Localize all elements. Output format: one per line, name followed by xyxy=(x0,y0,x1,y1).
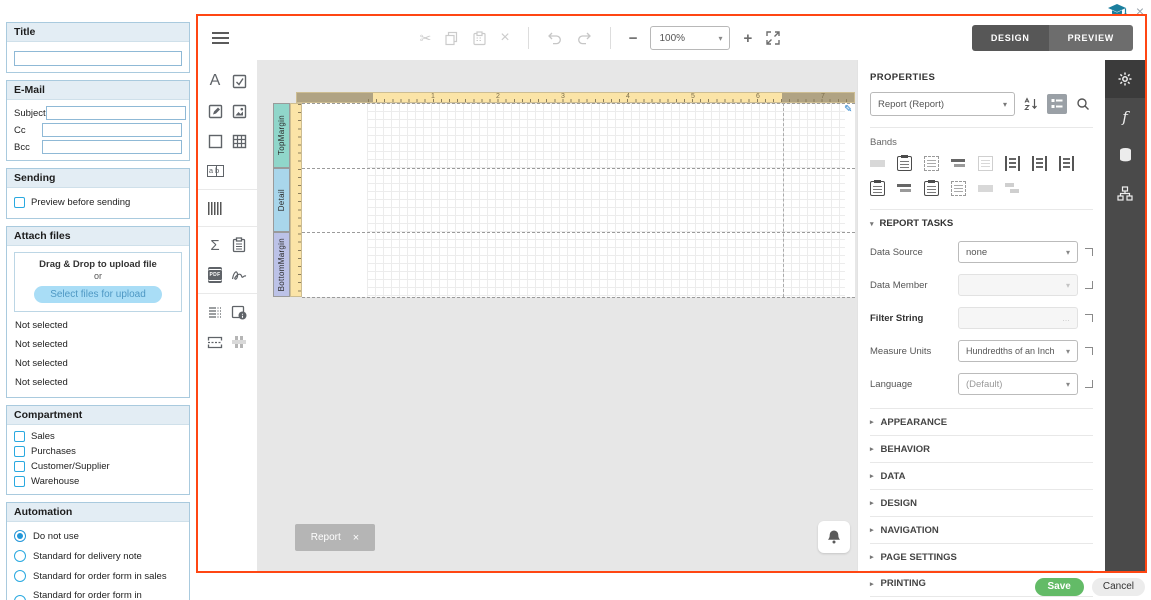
band-type-icon xyxy=(1005,181,1020,196)
function-icon: f xyxy=(1122,108,1128,126)
section-label: DESIGN xyxy=(881,498,917,509)
compartment-customer-supplier-label: Customer/Supplier xyxy=(31,461,110,472)
band-type-icon[interactable] xyxy=(1032,156,1047,171)
measure-units-label: Measure Units xyxy=(870,346,958,357)
label-tool[interactable]: A xyxy=(203,72,227,90)
band-type-icon xyxy=(870,156,885,171)
table-tool[interactable] xyxy=(227,134,251,149)
copy-icon[interactable] xyxy=(444,31,459,46)
picture-box-tool[interactable] xyxy=(227,104,251,119)
preview-before-sending-label: Preview before sending xyxy=(31,197,130,208)
compartment-customer-supplier-checkbox[interactable] xyxy=(14,461,25,472)
control-toolbox: A xyxy=(198,60,257,571)
data-source-dropdown[interactable]: none ▾ xyxy=(958,241,1078,263)
ruler-number: 7 xyxy=(821,93,825,100)
chevron-collapsed-icon: ▸ xyxy=(870,445,874,453)
page-break-tool[interactable] xyxy=(203,336,227,349)
attachment-slot: Not selected xyxy=(15,358,182,369)
properties-title: PROPERTIES xyxy=(870,72,1093,83)
menu-hamburger-icon[interactable] xyxy=(212,29,229,47)
band-type-toolbar xyxy=(870,156,1093,171)
filter-string-label: Filter String xyxy=(870,313,958,324)
property-marker[interactable] xyxy=(1085,281,1093,289)
delete-icon[interactable]: × xyxy=(500,31,509,45)
automation-label: Standard for order form in purchases xyxy=(33,590,182,600)
zoom-out-button[interactable]: − xyxy=(629,30,638,47)
designer-sidebar: f xyxy=(1105,60,1145,571)
compartment-sales-label: Sales xyxy=(31,431,55,442)
automation-radio-order-form-purchases[interactable] xyxy=(14,595,26,600)
band-topmargin-label: TopMargin xyxy=(277,115,286,155)
data-member-label: Data Member xyxy=(870,280,958,291)
compartment-header: Compartment xyxy=(7,406,189,425)
right-margin-guide xyxy=(783,103,784,297)
automation-radio-order-form-sales[interactable] xyxy=(14,570,26,582)
chevron-collapsed-icon: ▸ xyxy=(870,526,874,534)
band-type-toolbar xyxy=(870,181,1093,196)
property-marker[interactable] xyxy=(1085,380,1093,388)
panel-tool[interactable] xyxy=(203,134,227,149)
property-marker[interactable] xyxy=(1085,248,1093,256)
title-section: Title xyxy=(6,22,190,73)
measure-units-value: Hundredths of an Inch xyxy=(966,346,1055,356)
field-list-tab-button[interactable] xyxy=(1105,136,1145,174)
character-comb-tool[interactable]: ab xyxy=(203,165,227,177)
cancel-button[interactable]: Cancel xyxy=(1092,578,1145,596)
report-tasks-section[interactable]: ▾ REPORT TASKS xyxy=(870,209,1093,237)
report-document-tab[interactable]: Report × xyxy=(295,524,375,551)
data-source-label: Data Source xyxy=(870,247,958,258)
compartment-purchases-label: Purchases xyxy=(31,446,76,457)
design-surface[interactable]: 1 2 3 4 5 6 7 TopMargin Detail BottomMar… xyxy=(257,60,857,571)
ellipsis-icon[interactable]: … xyxy=(1062,314,1070,323)
database-icon xyxy=(1118,147,1133,163)
cross-band-tool[interactable] xyxy=(227,335,251,349)
chevron-collapsed-icon: ▸ xyxy=(870,553,874,561)
section-label: BEHAVIOR xyxy=(881,444,930,455)
automation-radio-do-not-use[interactable] xyxy=(14,530,26,542)
section-data[interactable]: ▸ DATA xyxy=(870,462,1093,489)
attach-files-section: Attach files Drag & Drop to upload file … xyxy=(6,226,190,398)
automation-section: Automation Do not use Standard for deliv… xyxy=(6,502,190,600)
designer-toolbar: ✂ × − 100% ▾ xyxy=(198,16,1145,60)
attachment-slot: Not selected xyxy=(15,320,182,331)
section-navigation[interactable]: ▸ NAVIGATION xyxy=(870,516,1093,543)
property-marker[interactable] xyxy=(1085,314,1093,322)
attachment-slot: Not selected xyxy=(15,339,182,350)
bands-group-label: Bands xyxy=(870,137,1093,148)
language-label: Language xyxy=(870,379,958,390)
band-bottommargin[interactable]: BottomMargin xyxy=(273,232,290,297)
section-label: APPEARANCE xyxy=(881,417,948,428)
element-selector-value: Report (Report) xyxy=(878,99,944,110)
section-behavior[interactable]: ▸ BEHAVIOR xyxy=(870,435,1093,462)
report-designer: ✂ × − 100% ▾ xyxy=(196,14,1147,573)
band-bottommargin-label: BottomMargin xyxy=(277,238,286,291)
chevron-down-icon: ▾ xyxy=(1066,380,1070,389)
band-divider xyxy=(302,103,855,104)
band-divider[interactable] xyxy=(302,232,855,233)
sending-section: Sending Preview before sending xyxy=(6,168,190,219)
chevron-down-icon: ▾ xyxy=(711,34,729,43)
section-appearance[interactable]: ▸ APPEARANCE xyxy=(870,408,1093,435)
pdf-content-tool[interactable]: PDF xyxy=(203,269,227,281)
vertical-ruler xyxy=(290,103,302,297)
section-page-settings[interactable]: ▸ PAGE SETTINGS xyxy=(870,543,1093,570)
email-section-header: E-Mail xyxy=(7,81,189,100)
band-type-icon[interactable] xyxy=(1005,156,1020,171)
cut-icon[interactable]: ✂ xyxy=(420,31,432,45)
save-button[interactable]: Save xyxy=(1035,578,1084,596)
redo-icon[interactable] xyxy=(576,31,592,45)
report-tab-label: Report xyxy=(311,532,341,543)
title-section-header: Title xyxy=(7,23,189,42)
compartment-sales-checkbox[interactable] xyxy=(14,431,25,442)
sort-az-button[interactable] xyxy=(1021,94,1041,114)
band-type-icon[interactable] xyxy=(897,181,912,196)
design-tab[interactable]: DESIGN xyxy=(972,25,1049,51)
chevron-expanded-icon: ▾ xyxy=(870,220,874,228)
chevron-collapsed-icon: ▸ xyxy=(870,472,874,480)
checkbox-tool[interactable] xyxy=(227,74,251,89)
title-input[interactable] xyxy=(14,51,182,66)
element-selector-dropdown[interactable]: Report (Report) ▾ xyxy=(870,92,1015,116)
tree-structure-icon xyxy=(1117,186,1133,201)
measure-units-dropdown[interactable]: Hundredths of an Inch ▾ xyxy=(958,340,1078,362)
filter-string-field: … xyxy=(958,307,1078,329)
bcc-label: Bcc xyxy=(14,142,42,153)
sending-section-header: Sending xyxy=(7,169,189,188)
chevron-collapsed-icon: ▸ xyxy=(870,418,874,426)
automation-label: Standard for order form in sales xyxy=(33,571,167,582)
band-type-icon[interactable] xyxy=(951,156,966,171)
cc-label: Cc xyxy=(14,125,42,136)
clipboard-tool[interactable] xyxy=(227,237,251,253)
automation-label: Do not use xyxy=(33,531,79,542)
mail-settings-panel: Title E-Mail Subject Cc Bcc xyxy=(6,22,190,600)
horizontal-ruler: 1 2 3 4 5 6 7 xyxy=(296,92,855,103)
band-type-icon[interactable] xyxy=(924,181,939,196)
zoom-in-button[interactable]: + xyxy=(743,30,752,47)
report-explorer-tab-button[interactable] xyxy=(1105,174,1145,212)
toolbar-separator xyxy=(528,27,529,49)
expressions-tab-button[interactable]: f xyxy=(1105,98,1145,136)
snap-grid xyxy=(367,103,845,297)
ruler-number: 3 xyxy=(561,93,565,100)
dropzone-text: Drag & Drop to upload file xyxy=(19,259,177,270)
bcc-input[interactable] xyxy=(42,140,182,154)
band-topmargin[interactable]: TopMargin xyxy=(273,103,290,168)
band-type-icon[interactable] xyxy=(924,156,939,171)
chevron-down-icon: ▾ xyxy=(1066,281,1070,290)
cc-input[interactable] xyxy=(42,123,182,137)
notifications-button[interactable] xyxy=(818,521,850,553)
page-info-tool[interactable] xyxy=(227,305,251,320)
gear-icon xyxy=(1117,71,1133,87)
band-divider[interactable] xyxy=(302,297,855,298)
compartment-warehouse-label: Warehouse xyxy=(31,476,79,487)
report-tasks-title: REPORT TASKS xyxy=(880,218,954,229)
section-label: PAGE SETTINGS xyxy=(881,552,957,563)
ruler-number: 6 xyxy=(756,93,760,100)
select-files-button[interactable]: Select files for upload xyxy=(34,286,162,303)
band-type-icon[interactable] xyxy=(897,156,912,171)
data-source-value: none xyxy=(966,247,987,258)
section-label: DATA xyxy=(881,471,906,482)
zoom-level-select[interactable]: 100% ▾ xyxy=(650,26,730,50)
language-dropdown[interactable]: (Default) ▾ xyxy=(958,373,1078,395)
paste-icon[interactable] xyxy=(472,31,487,46)
language-value: (Default) xyxy=(966,379,1002,390)
email-section: E-Mail Subject Cc Bcc xyxy=(6,80,190,161)
preview-tab[interactable]: PREVIEW xyxy=(1049,25,1133,51)
report-tab-close-icon[interactable]: × xyxy=(353,532,359,544)
chevron-collapsed-icon: ▸ xyxy=(870,499,874,507)
band-type-icon[interactable] xyxy=(870,181,885,196)
automation-header: Automation xyxy=(7,503,189,522)
search-icon[interactable] xyxy=(1073,94,1093,114)
chevron-down-icon: ▾ xyxy=(1066,347,1070,356)
edit-pencil-icon[interactable]: ✎ xyxy=(844,104,852,115)
group-by-category-button[interactable] xyxy=(1047,94,1067,114)
dialog-footer: Save Cancel xyxy=(1035,578,1146,596)
properties-panel: PROPERTIES Report (Report) ▾ xyxy=(857,60,1105,571)
signature-tool[interactable] xyxy=(227,268,251,282)
preview-before-sending-checkbox[interactable] xyxy=(14,197,25,208)
barcode-tool[interactable] xyxy=(203,202,227,215)
bell-icon xyxy=(826,529,842,545)
attachment-slot: Not selected xyxy=(15,377,182,388)
fullscreen-icon[interactable] xyxy=(765,30,781,46)
attach-files-header: Attach files xyxy=(7,227,189,246)
dropzone-or-text: or xyxy=(19,271,177,281)
chevron-down-icon: ▾ xyxy=(1066,248,1070,257)
band-detail[interactable]: Detail xyxy=(273,168,290,232)
compartment-warehouse-checkbox[interactable] xyxy=(14,476,25,487)
properties-tab-button[interactable] xyxy=(1105,60,1145,98)
rich-text-tool[interactable] xyxy=(203,104,227,119)
mode-switch: DESIGN PREVIEW xyxy=(972,25,1133,51)
zoom-level-value: 100% xyxy=(651,33,711,44)
band-detail-label: Detail xyxy=(277,189,286,211)
chevron-down-icon: ▾ xyxy=(1003,100,1007,109)
subject-input[interactable] xyxy=(46,106,186,120)
band-divider[interactable] xyxy=(302,168,855,169)
line-list-tool[interactable] xyxy=(203,306,227,319)
band-type-icon xyxy=(978,156,993,171)
app-root: × Title E-Mail Subject Cc Bcc xyxy=(0,0,1151,600)
undo-icon[interactable] xyxy=(547,31,563,45)
automation-label: Standard for delivery note xyxy=(33,551,142,562)
ruler-number: 2 xyxy=(496,93,500,100)
section-label: NAVIGATION xyxy=(881,525,939,536)
subject-label: Subject xyxy=(14,108,46,119)
summary-tool[interactable]: Σ xyxy=(203,237,227,254)
upload-dropzone[interactable]: Drag & Drop to upload file or Select fil… xyxy=(14,252,182,312)
band-type-icon xyxy=(978,181,993,196)
ruler-number: 5 xyxy=(691,93,695,100)
compartment-section: Compartment Sales Purchases Customer/Sup… xyxy=(6,405,190,495)
chevron-collapsed-icon: ▸ xyxy=(870,580,874,588)
band-type-icon[interactable] xyxy=(951,181,966,196)
automation-radio-delivery-note[interactable] xyxy=(14,550,26,562)
ruler-number: 1 xyxy=(431,93,435,100)
section-label: PRINTING xyxy=(881,578,926,589)
ruler-number: 4 xyxy=(626,93,630,100)
property-marker[interactable] xyxy=(1085,347,1093,355)
band-type-icon[interactable] xyxy=(1059,156,1074,171)
compartment-purchases-checkbox[interactable] xyxy=(14,446,25,457)
data-member-dropdown: ▾ xyxy=(958,274,1078,296)
section-design[interactable]: ▸ DESIGN xyxy=(870,489,1093,516)
toolbar-separator xyxy=(610,27,611,49)
